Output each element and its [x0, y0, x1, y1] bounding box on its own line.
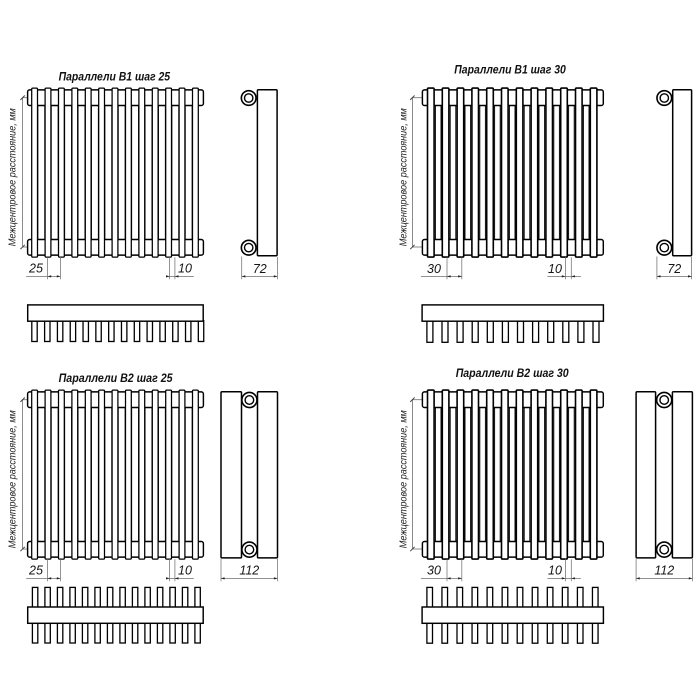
svg-text:Межцентровое расстояние, мм: Межцентровое расстояние, мм — [7, 108, 18, 246]
svg-text:10: 10 — [548, 262, 562, 276]
svg-text:30: 30 — [427, 262, 441, 276]
svg-text:25: 25 — [28, 262, 43, 276]
svg-text:Параллели В1 шаг 30: Параллели В1 шаг 30 — [454, 64, 566, 76]
svg-text:30: 30 — [427, 564, 441, 578]
svg-text:10: 10 — [548, 564, 562, 578]
svg-text:Параллели В2 шаг 25: Параллели В2 шаг 25 — [59, 373, 174, 385]
svg-text:10: 10 — [178, 262, 192, 276]
svg-text:25: 25 — [28, 564, 43, 578]
svg-text:Межцентровое расстояние, мм: Межцентровое расстояние, мм — [399, 108, 410, 246]
svg-text:112: 112 — [239, 563, 259, 577]
svg-text:112: 112 — [654, 563, 674, 577]
svg-text:Межцентровое расстояние, мм: Межцентровое расстояние, мм — [7, 410, 18, 548]
svg-text:72: 72 — [253, 262, 267, 276]
svg-text:10: 10 — [178, 564, 192, 578]
svg-text:72: 72 — [667, 262, 681, 276]
svg-text:Параллели В1 шаг 25: Параллели В1 шаг 25 — [59, 71, 171, 83]
svg-text:Параллели В2 шаг 30: Параллели В2 шаг 30 — [456, 368, 570, 380]
svg-text:Межцентровое расстояние, мм: Межцентровое расстояние, мм — [399, 410, 410, 548]
